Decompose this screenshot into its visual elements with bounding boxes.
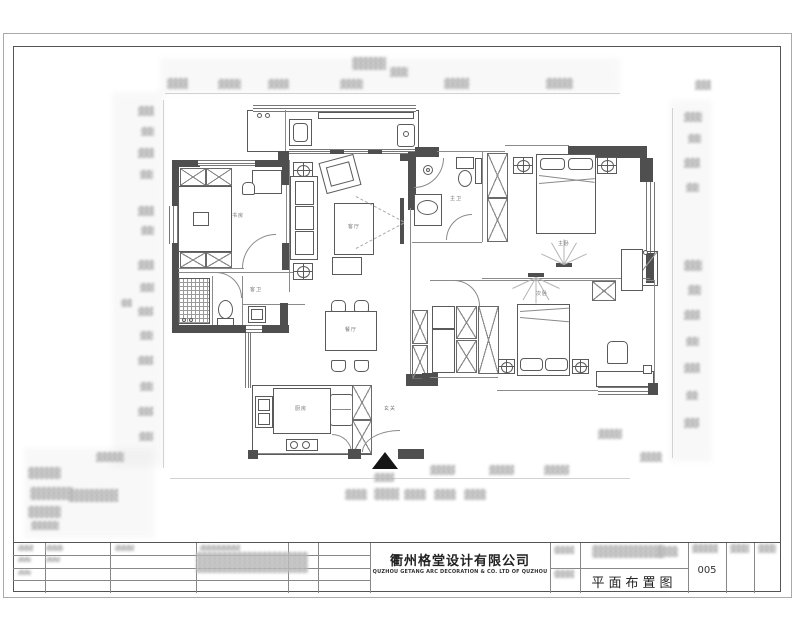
study-window [198,160,255,166]
balcony-fitting [257,113,262,118]
redacted-text-block [340,79,363,89]
redacted-text-block [141,226,154,235]
redacted-text-block [138,106,154,116]
wall-segment [348,449,361,459]
tatami-table [193,212,209,226]
redacted-text-block [28,467,61,479]
master-window [646,182,655,254]
kitchen-sink-basin [258,399,270,411]
wall-segment [422,373,438,386]
room-label-bedroom2: 次卧 [522,291,562,297]
titleblock-row-line [13,568,370,569]
wall-segment [398,449,424,459]
wall-segment [262,325,289,333]
room-label-kitchen: 厨房 [281,406,321,412]
redacted-text-block [656,546,678,557]
wall-line [258,453,350,454]
wall-line [410,208,411,378]
redacted-text-block [138,307,153,316]
open-door-leaf [621,249,643,291]
redacted-text-block [138,206,154,216]
wall-segment [172,160,200,167]
shower-head-dot [426,168,430,172]
master-bed [536,154,596,234]
redacted-text-block [686,337,699,346]
balcony-shelf [318,112,414,119]
redacted-text-block [684,260,702,271]
redacted-text-block [390,67,408,77]
dimension-line [163,100,164,468]
wall-line [286,185,287,243]
pillow [520,358,543,371]
wardrobe-unit [478,306,499,374]
wall-line [497,390,599,391]
redacted-text-block [141,127,154,136]
redacted-text-block [730,544,749,553]
wall-line [437,151,505,152]
redacted-text-block [352,57,386,70]
entry-arrow [372,452,398,469]
redacted-text-block [546,78,573,89]
redacted-text-block [68,489,118,502]
wall-segment [172,325,246,333]
dining-chair [331,360,346,372]
redacted-text-block [374,488,399,500]
wall-segment [640,158,653,182]
dimension-line [165,93,620,94]
toilet-bowl [218,300,233,319]
redacted-text-block [758,544,776,553]
redacted-text-block [139,432,153,441]
balcony-window [253,105,416,112]
study-side-window [169,206,178,244]
redacted-text-block [140,382,153,391]
pillow [540,158,565,170]
wall-line [412,242,482,243]
redacted-text-block [196,552,308,573]
redacted-text-block [218,79,241,89]
wardrobe-unit [180,252,206,268]
wall-line [646,280,654,281]
wall-line [212,276,213,326]
redacted-text-block [138,148,154,158]
redacted-text-block [554,570,574,578]
side-table [332,257,362,275]
desk-chair [607,341,628,364]
sliding-door-panel [330,150,344,154]
titleblock-row-line [13,580,370,581]
balcony-sliding-door [289,149,419,154]
wall-line [178,272,306,273]
stove-burner [290,441,298,449]
laundry-sink-basin [251,309,263,320]
nightstand-lamp [498,359,515,374]
vanity-sink [417,200,438,215]
wardrobe-unit [487,153,508,198]
redacted-text-block [140,170,153,179]
redacted-text-block [640,452,662,462]
nightstand-lamp [513,157,533,174]
balcony-divider [285,110,286,152]
room-label-guest-bath: 客卫 [238,287,274,293]
shower-drain [189,318,193,322]
watermark-wash [670,100,712,462]
redacted-text-block [695,80,711,90]
sofa-cushion [295,206,314,230]
wall-line [482,152,483,242]
counter-line [243,304,305,305]
kitchen-side-window [245,333,251,388]
redacted-text-block [28,506,61,518]
toilet-tank [456,157,474,169]
redacted-text-block [374,473,394,482]
wardrobe-unit [456,340,477,373]
stove-burner [302,441,310,449]
sofa-cushion [295,231,314,255]
redacted-text-block [46,545,63,551]
redacted-text-block [684,158,700,168]
redacted-text-block [138,356,153,365]
redacted-text-block [268,79,289,89]
wardrobe-unit [456,306,477,339]
redacted-text-block [686,183,699,192]
redacted-text-block [115,545,134,551]
redacted-text-block [684,363,700,373]
sofa [290,176,318,260]
room-label-entry: 玄关 [370,406,410,412]
redacted-text-block [592,545,664,558]
dimension-line [672,108,673,458]
wardrobe-unit [180,168,206,186]
wall-line [242,276,243,326]
redacted-text-block [686,391,698,400]
bedroom2-window [598,387,651,395]
redacted-text-block [46,557,60,562]
kitchen-sink-basin [258,413,270,425]
bath-window [246,325,262,333]
wall-line [430,377,498,378]
redacted-text-block [167,78,188,89]
redacted-text-block [138,260,154,270]
redacted-text-block [140,331,153,340]
redacted-text-block [489,465,514,475]
shower-drain [182,318,186,322]
fridge-line [332,409,351,410]
room-label-dining: 餐厅 [331,327,371,333]
redacted-text-block [444,78,469,89]
redacted-text-block [18,545,33,551]
toilet-bowl [458,170,472,187]
redacted-text-block [96,452,124,462]
balcony-sink-drain [403,131,409,137]
dining-chair [354,300,369,312]
redacted-text-block [598,429,622,439]
drawing-number: 005 [688,565,726,576]
wall-line [654,280,655,384]
washing-machine-drum [293,123,308,142]
redacted-text-block [688,285,701,295]
wall-line [505,145,569,146]
redacted-text-block [121,299,132,307]
pillow [545,358,568,371]
redacted-text-block [554,546,574,554]
redacted-text-block [430,465,455,475]
closet-cell [432,306,455,329]
titleblock-divider [726,543,727,593]
titleblock-row-line [13,555,370,556]
redacted-text-block [200,545,240,551]
company-name: 衢州格堂设计有限公司 [373,550,547,569]
redacted-text-block [692,544,718,553]
wall-segment [280,303,288,327]
room-label-master-bath: 主卫 [436,196,476,202]
sofa-cushion [295,181,314,205]
column-symbol [293,263,313,280]
desk-box [643,365,652,374]
bath-shelf [475,158,482,184]
redacted-text-block [404,489,426,500]
redacted-text-block [31,521,59,530]
bedroom2-bed [517,304,570,376]
wardrobe-unit [487,198,508,242]
redacted-text-block [138,407,153,416]
study-desk [252,170,282,194]
redacted-text-block [684,418,699,428]
room-label-master-bedroom: 主卧 [544,241,584,247]
nightstand-lamp [572,359,589,374]
wall-segment [282,243,289,270]
blanket-fold [520,308,569,312]
dimension-line [170,478,630,479]
study-chair [242,182,255,195]
balcony-fitting [265,113,270,118]
fridge [330,394,353,426]
blanket-fold [520,317,569,322]
dining-chair [354,360,369,372]
redacted-text-block [345,489,367,500]
pillow [568,158,593,170]
hallway-cabinet [412,310,428,344]
redacted-text-block [464,489,486,500]
armchair-seat [326,161,354,187]
drawing-sheet: 书房 客厅 餐厅 厨房 玄关 主卫 主卧 次卧 客卫 衢州格堂设计有限公司 QU… [0,0,800,640]
wall-line [178,268,244,269]
titleblock-divider [754,543,755,593]
redacted-text-block [544,465,569,475]
wall-segment [248,450,258,459]
wall-segment [648,383,658,395]
drawing-title: 平面布置图 [580,572,688,591]
tall-cabinet [352,385,372,420]
room-label-living: 客厅 [336,224,372,230]
door-hinge [643,250,648,255]
redacted-text-block [18,570,31,575]
nightstand-lamp [597,157,617,174]
company-name-en: QUZHOU GETANG ARC DECORATION & CO. LTD O… [371,569,549,575]
dining-chair [331,300,346,312]
wall-segment [282,160,289,185]
redacted-text-block [30,487,73,500]
room-label-study: 书房 [222,213,254,219]
redacted-text-block [18,557,31,562]
redacted-text-block [688,134,701,143]
cabinet [592,281,616,301]
redacted-text-block [140,283,154,292]
wardrobe-unit [206,252,232,268]
redacted-text-block [434,489,456,500]
titleblock-row-line [550,568,688,569]
redacted-text-block [684,310,700,320]
closet-cell [432,329,455,373]
wardrobe-unit [206,168,232,186]
wall-segment [415,147,439,157]
redacted-text-block [684,112,702,122]
sliding-door-panel [368,150,382,154]
titleblock-divider [370,543,371,593]
